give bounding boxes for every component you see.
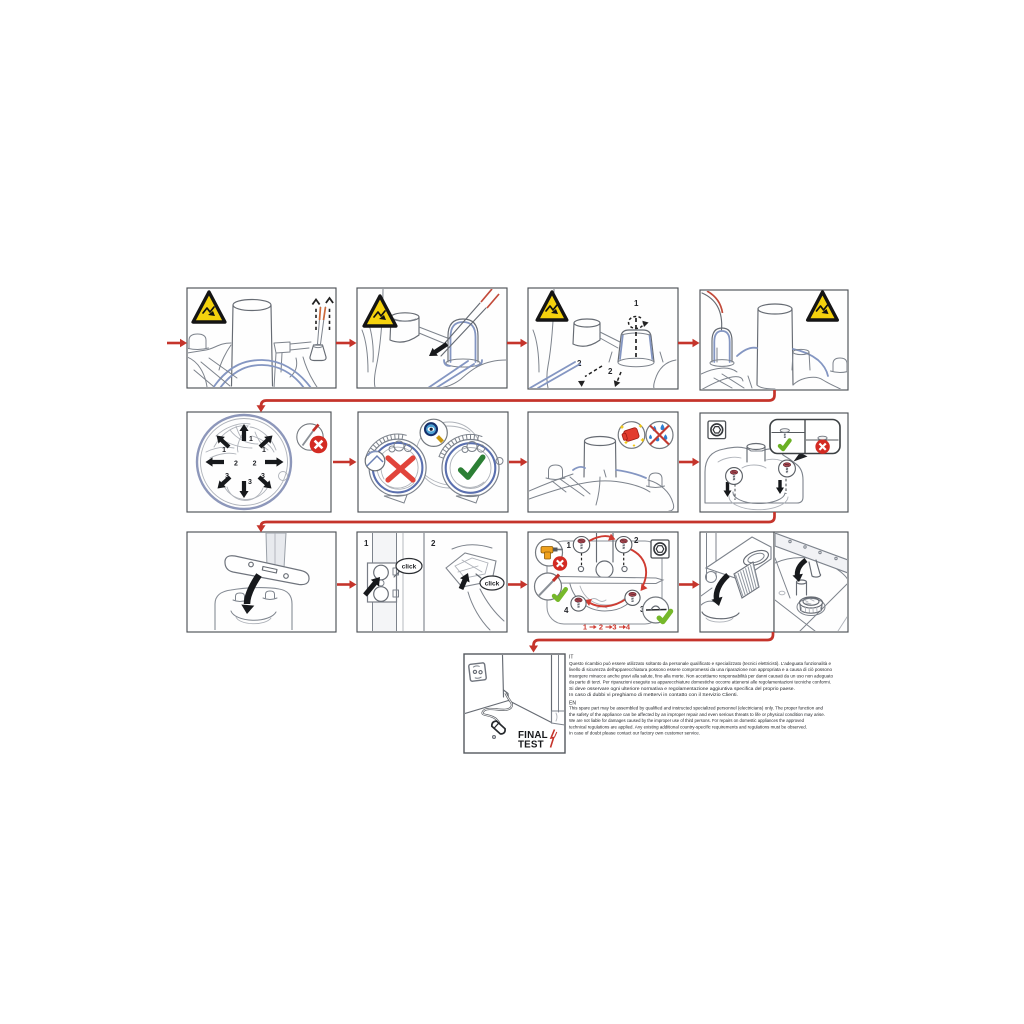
svg-text:3: 3: [225, 473, 229, 480]
svg-text:1: 1: [567, 541, 572, 550]
svg-text:2: 2: [234, 461, 238, 468]
svg-text:2: 2: [599, 623, 603, 632]
svg-text:1: 1: [634, 299, 639, 308]
svg-text:3: 3: [261, 473, 265, 480]
svg-text:click: click: [402, 563, 417, 570]
svg-text:da parte di terzi. Per riparaz: da parte di terzi. Per riparazioni esegu…: [569, 680, 831, 686]
svg-text:insorgere minacce anche gravi: insorgere minacce anche gravi alla salut…: [569, 673, 833, 679]
svg-text:click: click: [485, 580, 500, 587]
svg-text:IT: IT: [569, 655, 573, 661]
svg-text:1: 1: [583, 623, 587, 632]
svg-text:In case of doubt please contac: In case of doubt please contact our fact…: [569, 731, 700, 737]
svg-text:2: 2: [253, 461, 257, 468]
svg-text:1: 1: [222, 447, 226, 454]
svg-text:2: 2: [608, 367, 613, 376]
svg-text:1: 1: [249, 436, 253, 443]
svg-text:Si deve osservare ogni ulterio: Si deve osservare ogni ulteriore normati…: [569, 686, 795, 692]
svg-text:We are not liable for damages: We are not liable for damages caused by …: [569, 718, 804, 724]
svg-text:1: 1: [262, 447, 266, 454]
svg-text:This spare part may be assembl: This spare part may be assembled by qual…: [569, 706, 823, 712]
svg-text:Questo ricambio può essere uti: Questo ricambio può essere utilizzato so…: [569, 661, 831, 667]
svg-text:4: 4: [564, 606, 569, 615]
svg-text:3: 3: [248, 479, 252, 486]
svg-text:In caso di dubbi vi preghiamo: In caso di dubbi vi preghiamo di metterv…: [569, 692, 738, 698]
svg-text:2: 2: [431, 539, 436, 548]
svg-text:technical regulations are appl: technical regulations are applied. Any e…: [569, 724, 807, 730]
svg-text:TEST: TEST: [518, 740, 544, 751]
svg-text:the safety of the appliance ca: the safety of the appliance can be affec…: [569, 712, 825, 718]
svg-text:1: 1: [364, 539, 369, 548]
svg-text:2: 2: [634, 536, 639, 545]
svg-text:livello di sicurezza dell'appa: livello di sicurezza dell'apparecchiatur…: [569, 667, 832, 673]
svg-text:3: 3: [612, 623, 616, 632]
